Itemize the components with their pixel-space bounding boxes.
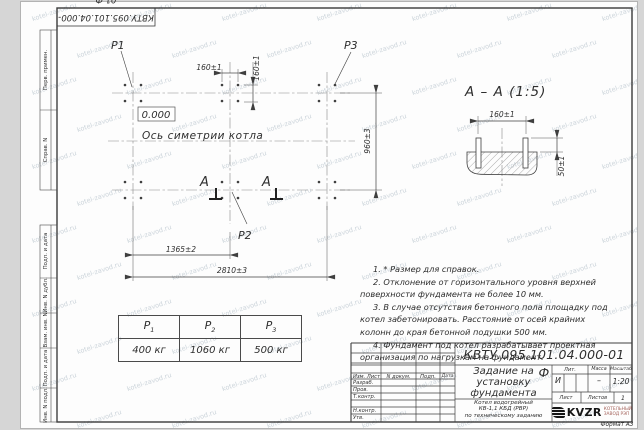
lit-label: Лит. bbox=[553, 367, 587, 373]
dim-160-horizontal: 160±1 bbox=[196, 63, 221, 72]
load-point-p3-label: P3 bbox=[344, 39, 358, 52]
margin-stamp-podp-data-2: Подп. и дата bbox=[43, 350, 49, 387]
col-header-data: Дата bbox=[441, 374, 454, 380]
col-header-podp: Подп. bbox=[417, 374, 439, 380]
sheets-label: Листов bbox=[582, 395, 613, 401]
load-point-p2-label: P2 bbox=[238, 229, 252, 242]
margin-stamp-inv-podl: Инв. N подл. bbox=[43, 387, 49, 423]
note-2: 2. Отклонение от горизонтального уровня … bbox=[360, 276, 618, 301]
note-1: 1. * Размер для справок. bbox=[360, 263, 618, 276]
load-point-p1-label: P1 bbox=[111, 39, 125, 52]
margin-stamp-sprav-n: Справ. N bbox=[43, 138, 49, 163]
axis-label: Ось симетрии котла bbox=[142, 130, 263, 142]
title-block-subtitle: Котел водогрейный КВ-1,1 КБД (РВР) по те… bbox=[455, 400, 552, 419]
sig-row-nkontr: Н.контр. bbox=[353, 408, 376, 414]
sheet-label: Лист bbox=[553, 395, 579, 401]
load-table: P1 P2 P3 400 кг 1060 кг 500 кг bbox=[118, 315, 302, 362]
dim-1365: 1365±2 bbox=[166, 245, 196, 254]
dimension-lines bbox=[133, 73, 557, 277]
load-table-header-p2: P2 bbox=[180, 316, 241, 339]
mass-label: Масса bbox=[589, 367, 609, 373]
section-view-title: А – А (1:5) bbox=[464, 84, 546, 100]
margin-stamp-inv-dubl: Инв. N дубл. bbox=[43, 277, 49, 312]
col-header-izm-list: Изм. Лист bbox=[352, 374, 381, 380]
lit-value: И bbox=[552, 376, 564, 385]
dim-960: 960±3 bbox=[363, 128, 372, 154]
kvzr-logo-text: KVZR bbox=[567, 406, 602, 419]
note-3: 3. В случае отсутствия бетонного пола пл… bbox=[360, 301, 618, 339]
load-table-header-p3: P3 bbox=[241, 316, 302, 339]
load-value-p1: 400 кг bbox=[119, 339, 180, 362]
kvzr-logo-icon bbox=[552, 407, 565, 418]
center-lines bbox=[108, 62, 502, 224]
sig-row-prov: Пров. bbox=[353, 387, 368, 393]
sig-row-tkontr: Т.контр. bbox=[353, 394, 375, 400]
title-block-title: Задание на установку фундамента bbox=[455, 367, 552, 399]
sig-row-utv: Утв. bbox=[353, 415, 364, 421]
sheets-value: 1 bbox=[614, 394, 632, 402]
col-header-n-dokum: N докум. bbox=[382, 374, 415, 380]
sig-row-razrab: Разраб. bbox=[353, 380, 373, 386]
format-label: Формат А3 bbox=[592, 422, 642, 428]
dim-160-vertical: 160±1 bbox=[252, 55, 261, 80]
section-letter-left: А bbox=[199, 175, 209, 190]
drawing-sheet: kotel-zavod.rukotel-zavod.rukotel-zavod.… bbox=[0, 0, 644, 430]
load-value-p2: 1060 кг bbox=[180, 339, 241, 362]
section-cut-marks bbox=[209, 188, 283, 199]
dim-2810: 2810±3 bbox=[217, 266, 247, 275]
load-table-header-p1: P1 bbox=[119, 316, 180, 339]
load-table-header-row: P1 P2 P3 bbox=[119, 316, 302, 339]
elevation-value: 0.000 bbox=[142, 110, 171, 121]
margin-stamp-podp-data-1: Подп. и дата bbox=[43, 233, 49, 270]
margin-stamp-vzam-inv: Взам. инв. N bbox=[43, 312, 49, 347]
title-block-doc-number: КВТУ.095.101.04.000-01 Ф bbox=[456, 346, 632, 364]
corner-stamp: КВТУ.095.101.04.000-01 Ф bbox=[57, 8, 155, 26]
mass-value: – bbox=[589, 376, 609, 385]
logo-caption-line-2: ЗАВОД РЭП bbox=[604, 413, 632, 418]
scale-label: Масштаб bbox=[610, 367, 632, 373]
subtitle-line-3: по техническому заданию bbox=[455, 413, 552, 419]
load-table-value-row: 400 кг 1060 кг 500 кг bbox=[119, 339, 302, 362]
load-value-p3: 500 кг bbox=[241, 339, 302, 362]
kvzr-logo-caption: КОТЕЛЬНЫЙ ЗАВОД РЭП bbox=[604, 408, 632, 418]
company-logo: KVZR КОТЕЛЬНЫЙ ЗАВОД РЭП bbox=[552, 403, 632, 422]
scale-value: 1:20 bbox=[610, 377, 632, 386]
section-dim-50: 50±1 bbox=[557, 156, 566, 177]
margin-stamp-perv-primen: Перв. примен. bbox=[43, 50, 49, 90]
section-dim-160: 160±1 bbox=[489, 110, 514, 119]
section-letter-right: А bbox=[261, 175, 271, 190]
